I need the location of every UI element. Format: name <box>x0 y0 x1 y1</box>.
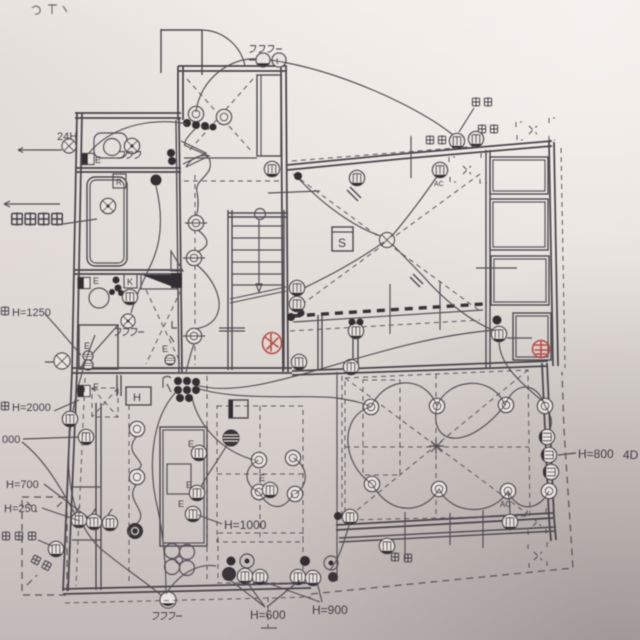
svg-text:E: E <box>95 155 101 165</box>
svg-text:000: 000 <box>2 434 20 446</box>
svg-text:H: H <box>133 392 141 404</box>
svg-text:E: E <box>93 276 99 286</box>
svg-text:H=900: H=900 <box>312 603 348 617</box>
svg-text:AC: AC <box>500 500 511 509</box>
svg-text:E: E <box>178 499 184 509</box>
svg-text:E: E <box>259 473 265 483</box>
svg-text:E: E <box>93 382 99 392</box>
svg-text:H=700: H=700 <box>6 479 39 491</box>
svg-text:H=1250: H=1250 <box>12 307 51 319</box>
svg-text:AC: AC <box>434 181 444 188</box>
svg-text:R: R <box>116 178 122 187</box>
svg-text:E: E <box>162 344 168 354</box>
svg-text:K: K <box>127 277 133 287</box>
svg-text:4D: 4D <box>623 448 639 462</box>
svg-text:H=1000: H=1000 <box>224 518 267 532</box>
svg-text:H=2000: H=2000 <box>12 402 51 414</box>
svg-text:S: S <box>338 236 346 250</box>
svg-text:H=800: H=800 <box>578 447 614 461</box>
svg-text:H=250: H=250 <box>4 503 37 515</box>
